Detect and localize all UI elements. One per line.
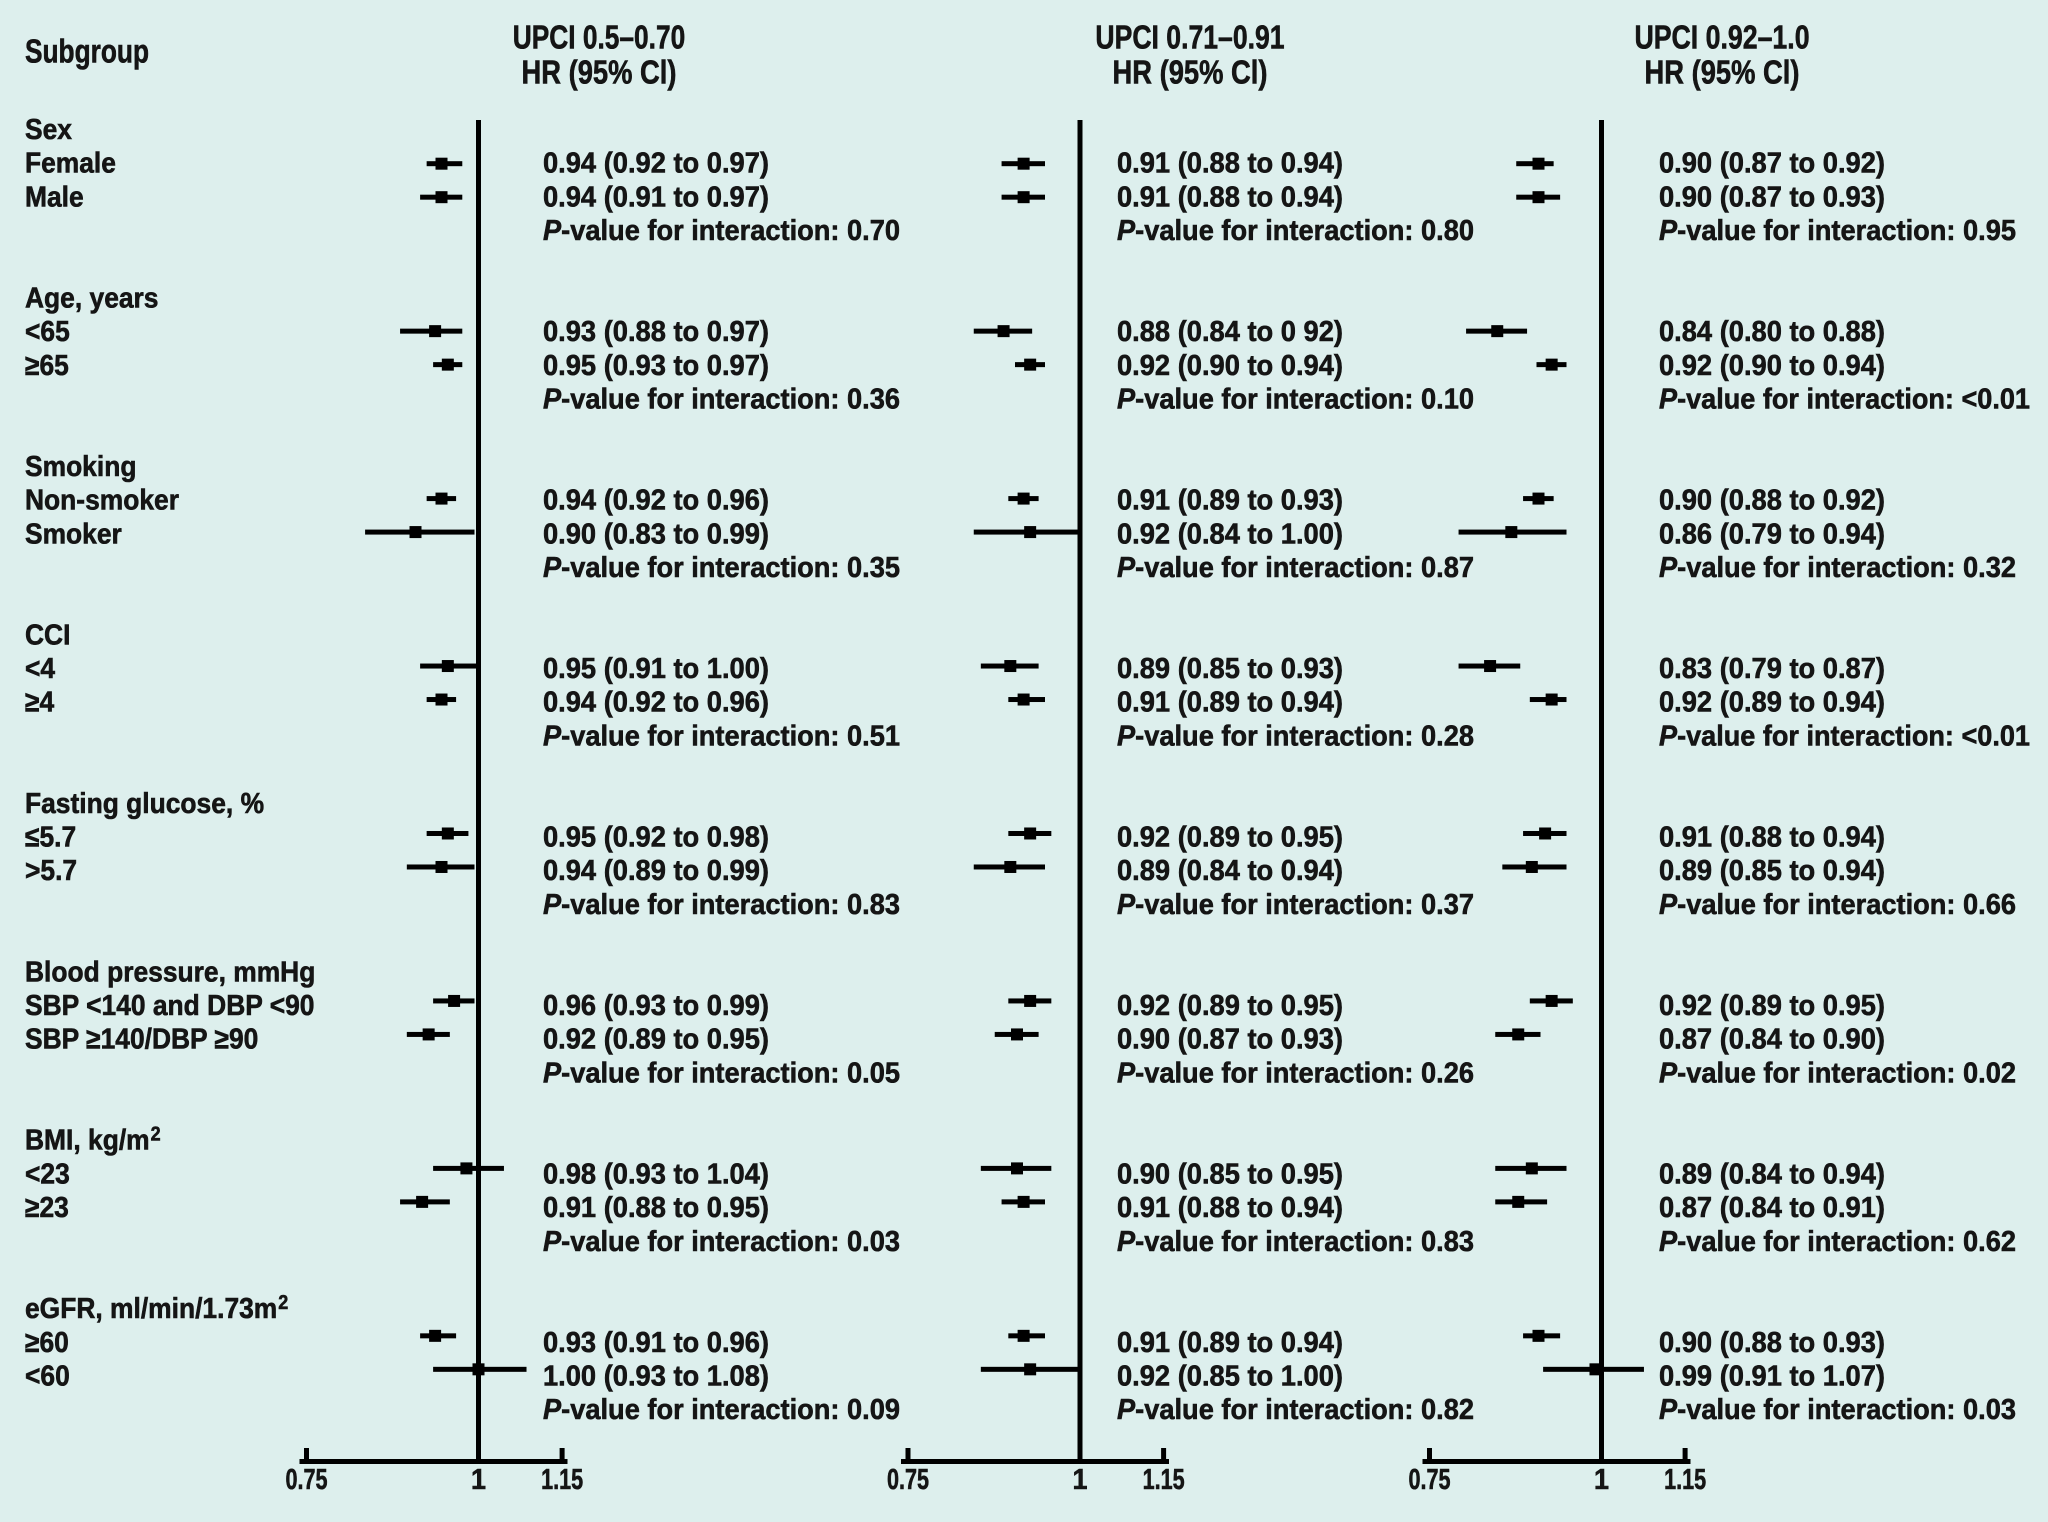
svg-text:HR (95% Cl): HR (95% Cl) <box>1113 53 1268 90</box>
svg-text:0.92 (0.89 to 0.94): 0.92 (0.89 to 0.94) <box>1659 687 1885 719</box>
svg-text:P-value for interaction: 0.83: P-value for interaction: 0.83 <box>1117 1226 1474 1258</box>
svg-text:P-value for interaction: 0.03: P-value for interaction: 0.03 <box>1659 1394 2016 1426</box>
svg-text:0.87 (0.84 to 0.90): 0.87 (0.84 to 0.90) <box>1659 1024 1885 1056</box>
svg-text:1.15: 1.15 <box>1143 1464 1185 1496</box>
svg-text:0.91 (0.88 to 0.94): 0.91 (0.88 to 0.94) <box>1659 821 1885 853</box>
svg-text:UPCI 0.5–0.70: UPCI 0.5–0.70 <box>513 18 685 55</box>
svg-text:Subgroup: Subgroup <box>25 33 149 70</box>
svg-text:≤5.7: ≤5.7 <box>25 821 76 853</box>
svg-text:0.92 (0.89 to 0.95): 0.92 (0.89 to 0.95) <box>1117 821 1343 853</box>
svg-text:HR (95% Cl): HR (95% Cl) <box>1645 53 1800 90</box>
svg-text:0.94 (0.91 to 0.97): 0.94 (0.91 to 0.97) <box>543 181 769 213</box>
svg-text:P-value for interaction: 0.36: P-value for interaction: 0.36 <box>543 384 900 416</box>
svg-text:0.95 (0.92 to 0.98): 0.95 (0.92 to 0.98) <box>543 821 769 853</box>
svg-text:Smoker: Smoker <box>25 518 122 550</box>
svg-text:P-value for interaction: 0.66: P-value for interaction: 0.66 <box>1659 889 2016 921</box>
svg-text:0.90 (0.87 to 0.93): 0.90 (0.87 to 0.93) <box>1659 181 1885 213</box>
svg-text:0.99 (0.91 to 1.07): 0.99 (0.91 to 1.07) <box>1659 1361 1885 1393</box>
svg-text:Male: Male <box>25 181 84 213</box>
svg-text:P-value for interaction: 0.51: P-value for interaction: 0.51 <box>543 720 900 752</box>
svg-text:0.96 (0.93 to 0.99): 0.96 (0.93 to 0.99) <box>543 990 769 1022</box>
svg-text:0.89 (0.84 to 0.94): 0.89 (0.84 to 0.94) <box>1117 855 1343 887</box>
svg-text:0.89 (0.85 to 0.93): 0.89 (0.85 to 0.93) <box>1117 653 1343 685</box>
svg-text:P-value for interaction: 0.82: P-value for interaction: 0.82 <box>1117 1394 1474 1426</box>
svg-text:0.91 (0.88 to 0.94): 0.91 (0.88 to 0.94) <box>1117 1192 1343 1224</box>
svg-text:0.92 (0.89 to 0.95): 0.92 (0.89 to 0.95) <box>1659 990 1885 1022</box>
svg-text:CCI: CCI <box>25 619 70 651</box>
svg-text:0.91 (0.89 to 0.94): 0.91 (0.89 to 0.94) <box>1117 687 1343 719</box>
svg-text:P-value for interaction: 0.32: P-value for interaction: 0.32 <box>1659 552 2016 584</box>
svg-text:Female: Female <box>25 148 116 180</box>
svg-text:SBP <140 and DBP <90: SBP <140 and DBP <90 <box>25 990 314 1022</box>
svg-text:Sex: Sex <box>25 114 72 146</box>
svg-text:0.90 (0.88 to 0.93): 0.90 (0.88 to 0.93) <box>1659 1327 1885 1359</box>
svg-text:P-value for interaction: 0.02: P-value for interaction: 0.02 <box>1659 1057 2016 1089</box>
svg-text:≥60: ≥60 <box>25 1327 69 1359</box>
svg-text:P-value for interaction: 0.70: P-value for interaction: 0.70 <box>543 215 900 247</box>
svg-text:0.86 (0.79 to 0.94): 0.86 (0.79 to 0.94) <box>1659 518 1885 550</box>
svg-text:P-value for interaction: <0.01: P-value for interaction: <0.01 <box>1659 720 2030 752</box>
svg-text:0.91 (0.89 to 0.94): 0.91 (0.89 to 0.94) <box>1117 1327 1343 1359</box>
svg-text:2: 2 <box>278 1292 288 1314</box>
svg-text:0.94 (0.92 to 0.97): 0.94 (0.92 to 0.97) <box>543 148 769 180</box>
svg-text:0.75: 0.75 <box>1409 1464 1451 1496</box>
svg-text:0.89 (0.84 to 0.94): 0.89 (0.84 to 0.94) <box>1659 1158 1885 1190</box>
svg-text:0.93 (0.88 to 0.97): 0.93 (0.88 to 0.97) <box>543 316 769 348</box>
svg-text:P-value for interaction: 0.83: P-value for interaction: 0.83 <box>543 889 900 921</box>
svg-text:0.90 (0.85 to 0.95): 0.90 (0.85 to 0.95) <box>1117 1158 1343 1190</box>
svg-text:0.84 (0.80 to 0.88): 0.84 (0.80 to 0.88) <box>1659 316 1885 348</box>
svg-text:1.15: 1.15 <box>541 1464 583 1496</box>
svg-text:Age, years: Age, years <box>25 282 158 314</box>
svg-text:<4: <4 <box>25 653 55 685</box>
svg-text:P-value for interaction: <0.01: P-value for interaction: <0.01 <box>1659 384 2030 416</box>
svg-text:P-value for interaction: 0.28: P-value for interaction: 0.28 <box>1117 720 1474 752</box>
svg-text:P-value for interaction: 0.62: P-value for interaction: 0.62 <box>1659 1226 2016 1258</box>
svg-text:P-value for interaction: 0.87: P-value for interaction: 0.87 <box>1117 552 1474 584</box>
svg-text:0.92 (0.89 to 0.95): 0.92 (0.89 to 0.95) <box>543 1024 769 1056</box>
svg-text:1: 1 <box>1594 1464 1609 1496</box>
svg-text:0.75: 0.75 <box>887 1464 929 1496</box>
svg-text:P-value for interaction: 0.03: P-value for interaction: 0.03 <box>543 1226 900 1258</box>
svg-text:≥23: ≥23 <box>25 1192 69 1224</box>
svg-text:0.92 (0.90 to 0.94): 0.92 (0.90 to 0.94) <box>1117 350 1343 382</box>
svg-text:1.00 (0.93 to 1.08): 1.00 (0.93 to 1.08) <box>543 1361 769 1393</box>
svg-text:Smoking: Smoking <box>25 451 136 483</box>
svg-text:P-value for interaction: 0.95: P-value for interaction: 0.95 <box>1659 215 2016 247</box>
svg-text:0.92 (0.90 to 0.94): 0.92 (0.90 to 0.94) <box>1659 350 1885 382</box>
svg-text:P-value for interaction: 0.37: P-value for interaction: 0.37 <box>1117 889 1474 921</box>
svg-text:0.94 (0.89 to 0.99): 0.94 (0.89 to 0.99) <box>543 855 769 887</box>
svg-text:0.91 (0.89 to 0.93): 0.91 (0.89 to 0.93) <box>1117 485 1343 517</box>
svg-text:0.98 (0.93 to 1.04): 0.98 (0.93 to 1.04) <box>543 1158 769 1190</box>
svg-text:1: 1 <box>1073 1464 1088 1496</box>
svg-text:P-value for interaction: 0.09: P-value for interaction: 0.09 <box>543 1394 900 1426</box>
svg-text:<60: <60 <box>25 1361 70 1393</box>
svg-text:0.87 (0.84 to 0.91): 0.87 (0.84 to 0.91) <box>1659 1192 1885 1224</box>
svg-text:P-value for interaction: 0.35: P-value for interaction: 0.35 <box>543 552 900 584</box>
svg-text:0.93 (0.91 to 0.96): 0.93 (0.91 to 0.96) <box>543 1327 769 1359</box>
svg-text:0.95 (0.91 to 1.00): 0.95 (0.91 to 1.00) <box>543 653 769 685</box>
svg-text:0.91 (0.88 to 0.94): 0.91 (0.88 to 0.94) <box>1117 148 1343 180</box>
svg-text:2: 2 <box>151 1124 161 1146</box>
svg-text:0.75: 0.75 <box>286 1464 328 1496</box>
svg-text:P-value for interaction: 0.05: P-value for interaction: 0.05 <box>543 1057 900 1089</box>
svg-text:P-value for interaction: 0.10: P-value for interaction: 0.10 <box>1117 384 1474 416</box>
svg-text:0.92 (0.89 to 0.95): 0.92 (0.89 to 0.95) <box>1117 990 1343 1022</box>
svg-text:0.91 (0.88 to 0.94): 0.91 (0.88 to 0.94) <box>1117 181 1343 213</box>
svg-text:≥4: ≥4 <box>25 687 54 719</box>
svg-text:0.88 (0.84 to 0 92): 0.88 (0.84 to 0 92) <box>1117 316 1343 348</box>
svg-text:UPCI 0.92–1.0: UPCI 0.92–1.0 <box>1634 18 1809 55</box>
svg-text:SBP ≥140/DBP ≥90: SBP ≥140/DBP ≥90 <box>25 1024 258 1056</box>
svg-text:1: 1 <box>471 1464 486 1496</box>
svg-text:BMI, kg/m: BMI, kg/m <box>25 1125 150 1157</box>
svg-text:UPCI 0.71–0.91: UPCI 0.71–0.91 <box>1095 18 1284 55</box>
svg-text:0.94 (0.92 to 0.96): 0.94 (0.92 to 0.96) <box>543 687 769 719</box>
svg-text:Non-smoker: Non-smoker <box>25 485 179 517</box>
svg-text:0.94 (0.92 to 0.96): 0.94 (0.92 to 0.96) <box>543 485 769 517</box>
svg-text:P-value for interaction: 0.26: P-value for interaction: 0.26 <box>1117 1057 1474 1089</box>
svg-text:0.83 (0.79 to 0.87): 0.83 (0.79 to 0.87) <box>1659 653 1885 685</box>
svg-text:0.90 (0.87 to 0.93): 0.90 (0.87 to 0.93) <box>1117 1024 1343 1056</box>
svg-text:eGFR, ml/min/1.73m: eGFR, ml/min/1.73m <box>25 1293 277 1325</box>
svg-text:0.89 (0.85 to 0.94): 0.89 (0.85 to 0.94) <box>1659 855 1885 887</box>
svg-text:Blood pressure, mmHg: Blood pressure, mmHg <box>25 956 315 988</box>
svg-text:0.90 (0.87 to 0.92): 0.90 (0.87 to 0.92) <box>1659 148 1885 180</box>
svg-text:Fasting glucose, %: Fasting glucose, % <box>25 788 264 820</box>
svg-text:≥65: ≥65 <box>25 350 69 382</box>
svg-text:1.15: 1.15 <box>1664 1464 1706 1496</box>
svg-text:0.90 (0.83 to 0.99): 0.90 (0.83 to 0.99) <box>543 518 769 550</box>
svg-text:0.92 (0.85 to 1.00): 0.92 (0.85 to 1.00) <box>1117 1361 1343 1393</box>
svg-text:>5.7: >5.7 <box>25 855 77 887</box>
svg-text:<23: <23 <box>25 1158 70 1190</box>
svg-text:0.92 (0.84 to 1.00): 0.92 (0.84 to 1.00) <box>1117 518 1343 550</box>
svg-text:0.91 (0.88 to 0.95): 0.91 (0.88 to 0.95) <box>543 1192 769 1224</box>
svg-text:0.95 (0.93 to 0.97): 0.95 (0.93 to 0.97) <box>543 350 769 382</box>
svg-text:P-value for interaction: 0.80: P-value for interaction: 0.80 <box>1117 215 1474 247</box>
svg-text:HR (95% Cl): HR (95% Cl) <box>522 53 677 90</box>
svg-text:<65: <65 <box>25 316 70 348</box>
svg-text:0.90 (0.88 to 0.92): 0.90 (0.88 to 0.92) <box>1659 485 1885 517</box>
